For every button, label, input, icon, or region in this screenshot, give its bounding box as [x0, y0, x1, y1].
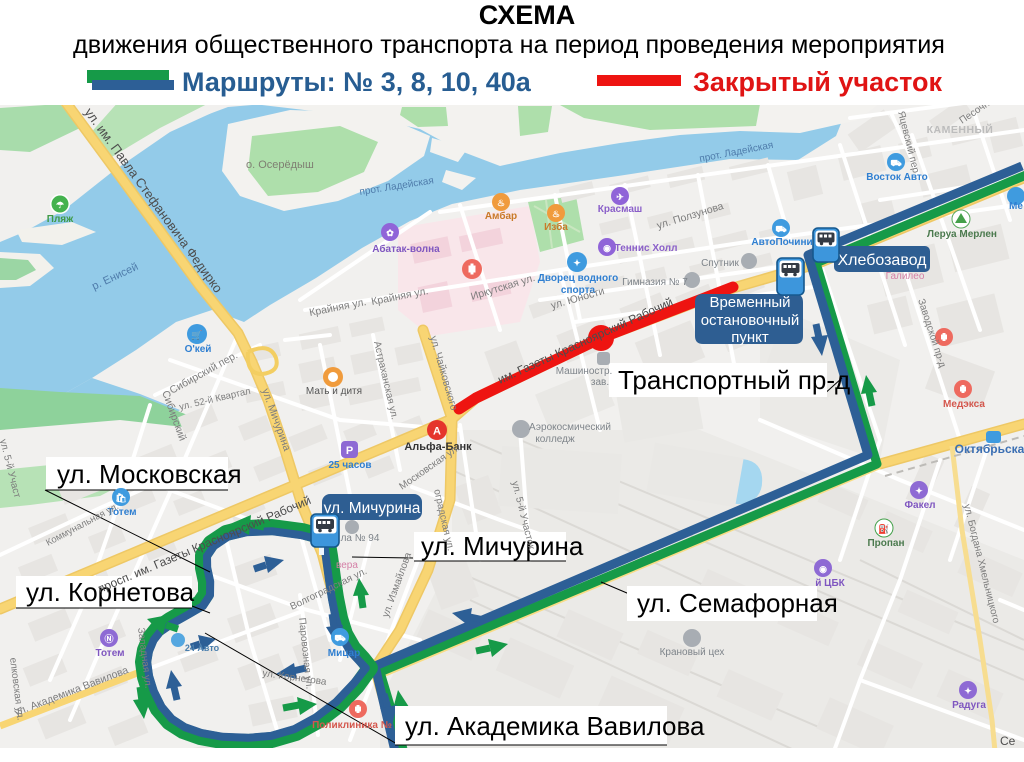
svg-text:Временный: Временный [709, 294, 790, 311]
svg-text:Мицар: Мицар [328, 648, 360, 659]
svg-text:Гимназия № 7: Гимназия № 7 [622, 277, 688, 288]
svg-text:⛟: ⛟ [890, 158, 902, 168]
svg-text:движения общественного транспо: движения общественного транспорта на пер… [73, 31, 945, 59]
svg-text:Машиностр.: Машиностр. [556, 366, 613, 377]
svg-text:СХЕМА: СХЕМА [479, 0, 575, 30]
svg-text:Альфа-Банк: Альфа-Банк [404, 441, 472, 453]
svg-text:P: P [346, 445, 353, 457]
svg-text:остановочный: остановочный [701, 312, 800, 329]
svg-text:ул. Академика Вавилова: ул. Академика Вавилова [405, 711, 705, 741]
svg-text:24 Авто: 24 Авто [185, 643, 220, 653]
svg-text:Транспортный пр-д: Транспортный пр-д [618, 365, 850, 395]
svg-text:Спутник: Спутник [701, 258, 739, 269]
svg-text:🛍: 🛍 [115, 492, 126, 503]
svg-text:Хлебозавод: Хлебозавод [837, 252, 927, 269]
svg-text:Ⓝ: Ⓝ [104, 633, 113, 644]
svg-text:◉: ◉ [819, 564, 827, 574]
svg-text:Мать и дитя: Мать и дитя [306, 386, 362, 397]
svg-text:й ЦБК: й ЦБК [815, 578, 845, 589]
svg-text:Медэкса: Медэкса [943, 399, 985, 410]
svg-text:колледж: колледж [535, 434, 575, 445]
svg-text:♨: ♨ [497, 198, 505, 208]
svg-text:А: А [433, 426, 441, 438]
svg-text:АвтоПочини: АвтоПочини [751, 237, 812, 248]
svg-text:Восток Авто: Восток Авто [866, 172, 928, 183]
svg-text:Крановый цех: Крановый цех [660, 647, 725, 658]
svg-text:ла № 94: ла № 94 [341, 533, 380, 544]
svg-text:пункт: пункт [731, 329, 769, 346]
svg-text:Дворец водного: Дворец водного [538, 273, 618, 284]
svg-text:Поликлиника №: Поликлиника № [312, 720, 392, 731]
svg-text:⛟: ⛟ [334, 633, 346, 643]
svg-text:Ме: Ме [1009, 201, 1023, 212]
svg-text:♨: ♨ [552, 209, 560, 219]
svg-text:✦: ✦ [915, 486, 923, 496]
svg-text:ул. Московская: ул. Московская [57, 459, 242, 489]
svg-text:✈: ✈ [616, 192, 624, 202]
svg-text:Тотем: Тотем [95, 648, 124, 659]
svg-text:Абатак-волна: Абатак-волна [372, 243, 440, 255]
svg-text:зав.: зав. [591, 377, 609, 388]
svg-text:Амбар: Амбар [485, 210, 517, 222]
svg-text:✦: ✦ [573, 258, 581, 268]
svg-text:Пропан: Пропан [867, 538, 904, 549]
svg-text:Пляж: Пляж [47, 214, 74, 225]
svg-text:Теннис Холл: Теннис Холл [615, 243, 678, 254]
svg-text:ул. Семафорная: ул. Семафорная [637, 588, 838, 618]
svg-text:о. Осерёдыш: о. Осерёдыш [246, 159, 314, 171]
svg-text:◉: ◉ [603, 243, 611, 253]
svg-text:О'кей: О'кей [185, 344, 212, 355]
svg-text:Факел: Факел [904, 500, 935, 511]
svg-text:Аэрокосмический: Аэрокосмический [529, 422, 611, 433]
svg-text:⛽: ⛽ [878, 523, 889, 534]
svg-text:25 часов: 25 часов [328, 460, 371, 471]
svg-text:Изба: Изба [544, 221, 568, 233]
svg-text:Маршруты: № 3, 8, 10, 40а: Маршруты: № 3, 8, 10, 40а [182, 67, 532, 97]
svg-text:🛒: 🛒 [191, 329, 202, 340]
svg-text:☂: ☂ [56, 200, 64, 210]
svg-text:Закрытый участок: Закрытый участок [693, 67, 942, 97]
svg-text:✿: ✿ [386, 228, 394, 238]
svg-text:ул. Мичурина: ул. Мичурина [324, 500, 421, 517]
svg-text:Се: Се [1000, 734, 1016, 748]
svg-text:Радуга: Радуга [952, 700, 986, 711]
svg-text:⛟: ⛟ [775, 224, 787, 234]
svg-text:Красмаш: Красмаш [598, 204, 643, 215]
svg-text:Леруа Мерлен: Леруа Мерлен [927, 229, 997, 240]
svg-text:КАМЕННЫЙ: КАМЕННЫЙ [927, 123, 994, 136]
svg-text:Октябрьская: Октябрьская [955, 442, 1024, 456]
svg-text:✦: ✦ [964, 686, 972, 696]
svg-text:Галилео: Галилео [886, 271, 925, 282]
